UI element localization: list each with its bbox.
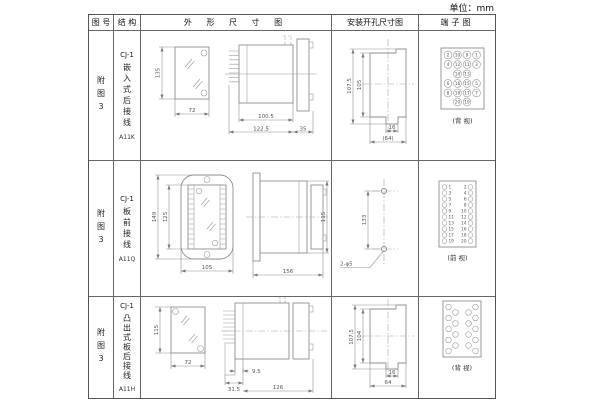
terminal-number: 7 [449, 203, 452, 208]
model-code: A11K [119, 134, 135, 141]
terminal-number: 11 [464, 62, 470, 68]
terminal-number: 6 [464, 197, 467, 202]
terminal-number: 8 [464, 203, 467, 208]
model-label: CJ-1 [120, 302, 134, 310]
outline-drawing-a11h: 115 72 31.5 9.5 126 [141, 297, 331, 398]
terminal-number: 15 [449, 227, 455, 232]
terminal-number: 5 [449, 197, 452, 202]
dim-label: 2-φ5 [340, 262, 353, 268]
header-terminal: 端子图 [419, 15, 495, 30]
dim-label: 126 [273, 385, 284, 391]
fig-no-cell-row3: 附图3 [89, 297, 113, 398]
dim-label: (64) [382, 136, 393, 142]
model-code: A11H [119, 386, 135, 393]
terminal-number: 7 [475, 91, 478, 97]
terminal-number: 9 [466, 53, 469, 59]
header-outline: 外 形 尺 寸 图 [141, 15, 331, 30]
view-caption: (背 视) [452, 116, 472, 125]
dim-label: 105 [202, 265, 213, 271]
header-structure: 结 构 [114, 15, 140, 30]
dim-label: 31.5 [228, 387, 241, 393]
dim-label: 115 [154, 324, 160, 335]
terminal-number: 5 [475, 81, 478, 87]
structure-cell-row1: CJ-1 嵌入式后接线 A11K [114, 31, 140, 160]
terminal-number: 6 [447, 81, 450, 87]
outline-drawing-a11q: 149 125 105 156 115 [141, 161, 331, 296]
dim-label: 135 [156, 67, 162, 78]
dim-label: 100.5 [258, 114, 274, 120]
terminal-number: 4 [447, 62, 450, 68]
datasheet-page: 单位：mm 图 号 结 构 外 形 尺 寸 图 安装开孔尺寸图 端子图 附图3 … [0, 0, 600, 400]
fig-no-text: 附图3 [96, 76, 107, 116]
dim-label: 107.5 [349, 329, 355, 345]
install-drawing-a11h: 107.5 104 16 64 [332, 297, 418, 398]
terminal-number: 1 [475, 53, 478, 59]
terminal-number: 18 [455, 91, 461, 97]
terminal-number: 11 [449, 215, 455, 220]
model-code: A11Q [119, 256, 135, 263]
terminal-number: 19 [449, 239, 455, 244]
terminal-number: 4 [464, 191, 467, 196]
terminal-number: 16 [455, 81, 461, 87]
dim-label: 133 [362, 214, 368, 225]
mount-type-label: 凸出式板后接线 [122, 314, 133, 381]
terminal-number: 2 [464, 185, 467, 190]
terminal-number: 17 [449, 233, 455, 238]
outline-drawing-a11k: 135 72 100.5 122.5 35 [141, 31, 331, 160]
dim-label: 122.5 [253, 127, 269, 133]
terminal-number: 20 [455, 100, 461, 106]
terminal-number: 16 [461, 227, 467, 232]
header-install: 安装开孔尺寸图 [332, 15, 418, 30]
header-fig-no: 图 号 [89, 15, 113, 30]
dim-label: 35 [300, 127, 307, 133]
terminal-number: 19 [464, 100, 470, 106]
dim-label: 16 [389, 370, 396, 376]
dim-label: 105 [357, 79, 363, 90]
terminal-pins [446, 304, 479, 354]
install-drawing-a11k: 107.5 105 16 (64) [332, 31, 418, 160]
model-label: CJ-1 [120, 195, 134, 203]
mount-type-label: 板前接线 [122, 207, 133, 251]
terminal-number: 3 [475, 62, 478, 68]
view-caption: (背 视) [452, 363, 472, 372]
fig-no-cell-row2: 附图3 [89, 161, 113, 296]
fig-no-text: 附图3 [96, 328, 107, 368]
terminal-number: 15 [464, 81, 470, 87]
terminal-number: 13 [464, 72, 470, 78]
fig-no-text: 附图3 [96, 209, 107, 249]
mount-type-label: 嵌入式后接线 [122, 63, 133, 129]
terminal-number: 3 [449, 191, 452, 196]
terminal-number: 18 [461, 233, 467, 238]
terminal-number: 2 [447, 53, 450, 59]
spec-table: 图 号 结 构 外 形 尺 寸 图 安装开孔尺寸图 端子图 附图3 CJ-1 嵌… [88, 14, 496, 399]
terminal-number: 14 [455, 72, 461, 78]
dim-label: 107.5 [347, 78, 353, 94]
dim-label: 104 [357, 330, 363, 341]
dim-label: 16 [389, 125, 396, 131]
fig-no-cell-row1: 附图3 [89, 31, 113, 160]
terminal-number: 17 [464, 91, 470, 97]
dim-label: 72 [189, 108, 196, 114]
model-label: CJ-1 [120, 51, 134, 59]
install-drawing-a11q: 133 2-φ5 [332, 161, 418, 296]
terminal-number: 1 [449, 185, 452, 190]
dim-label: 115 [321, 211, 327, 222]
dim-label: 125 [163, 211, 169, 222]
terminal-number: 20 [461, 239, 467, 244]
dim-label: 64 [385, 380, 392, 386]
terminal-number: 9 [449, 209, 452, 214]
structure-cell-row3: CJ-1 凸出式板后接线 A11H [114, 297, 140, 398]
terminal-number: 12 [461, 215, 467, 220]
terminal-number: 10 [461, 209, 467, 214]
unit-label: 单位：mm [415, 1, 494, 14]
terminal-drawing-a11q: 1 3 5 7 9 11 13 15 17 19 2 4 6 8 10 12 1… [419, 161, 495, 296]
terminal-drawing-a11k: 2 10 9 1 4 12 11 3 14 13 6 16 15 5 8 18 … [419, 31, 495, 160]
terminal-number: 14 [461, 221, 467, 226]
terminal-number: 10 [455, 53, 461, 59]
dim-label: 9.5 [252, 369, 261, 375]
terminal-columns: 1 3 5 7 9 11 13 15 17 19 2 4 6 8 10 12 1… [442, 185, 473, 244]
dim-label: 149 [152, 211, 158, 222]
dim-label: 72 [185, 360, 192, 366]
terminal-number: 13 [449, 221, 455, 226]
structure-cell-row2: CJ-1 板前接线 A11Q [114, 161, 140, 296]
terminal-grid: 2 10 9 1 4 12 11 3 14 13 6 16 15 5 8 18 … [444, 51, 480, 106]
terminal-number: 12 [455, 62, 461, 68]
terminal-drawing-a11h: (背 视) [419, 297, 495, 398]
view-caption: (前 视) [447, 253, 467, 262]
dim-label: 156 [283, 269, 294, 275]
terminal-number: 8 [447, 91, 450, 97]
